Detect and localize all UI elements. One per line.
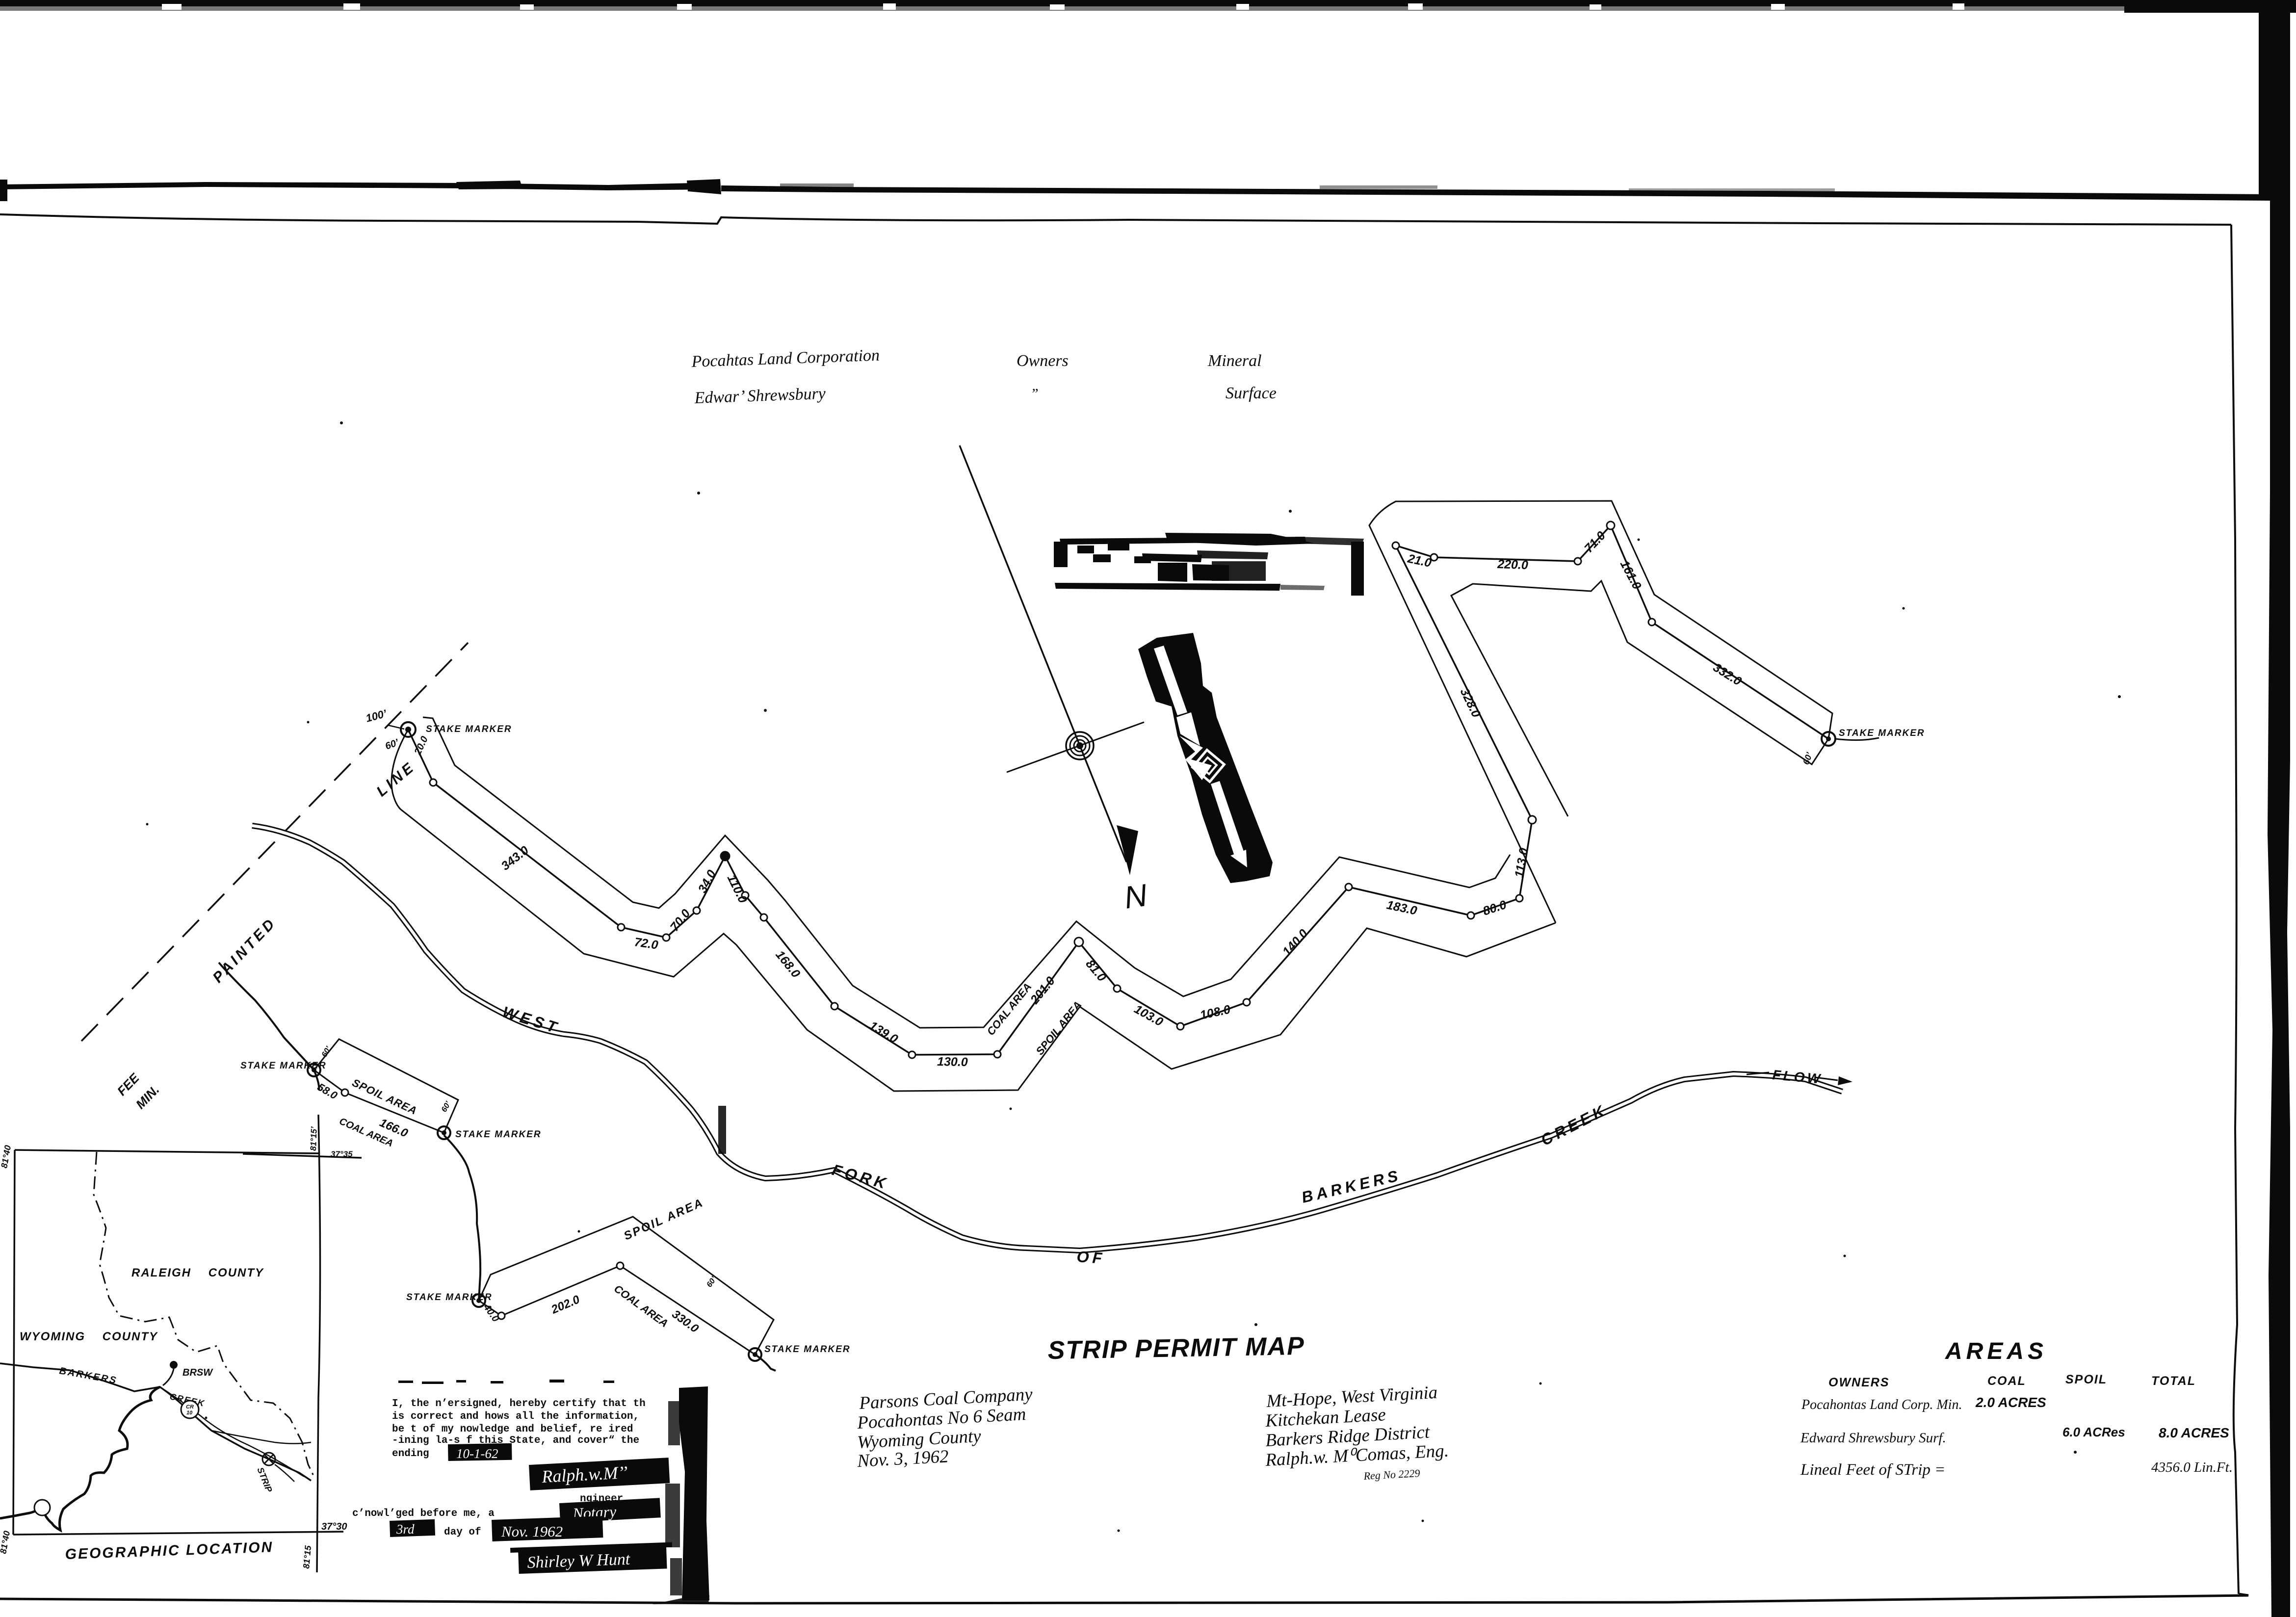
svg-text:is correct and hows all the i: is correct and hows all the information, — [392, 1411, 639, 1422]
svg-text:4356.0 Lin.Ft.: 4356.0 Lin.Ft. — [2151, 1460, 2233, 1475]
svg-text:STAKE MARKER: STAKE MARKER — [1839, 728, 1925, 738]
svg-text:BRSW: BRSW — [183, 1367, 213, 1378]
svg-text:COAL: COAL — [1987, 1374, 2026, 1388]
svg-text:6.0 ACRes: 6.0 ACRes — [2062, 1425, 2125, 1439]
svg-text:37°35: 37°35 — [331, 1149, 353, 1159]
svg-text:day of: day of — [444, 1527, 481, 1538]
svg-text:2.0 ACRES: 2.0 ACRES — [1975, 1395, 2046, 1410]
svg-text:130.0: 130.0 — [937, 1055, 968, 1069]
svg-text:OF: OF — [1076, 1248, 1106, 1267]
svg-text:I, the n’ersigned, hereby cer: I, the n’ersigned, hereby certify that t… — [392, 1398, 646, 1409]
svg-text:OWNERS: OWNERS — [1828, 1376, 1890, 1389]
svg-text:”: ” — [1030, 386, 1039, 402]
svg-text:Lineal Feet of STrip =: Lineal Feet of STrip = — [1800, 1461, 1945, 1479]
svg-text:STAKE MARKER: STAKE MARKER — [406, 1292, 493, 1303]
svg-text:RALEIGH COUNTY: RALEIGH COUNTY — [131, 1266, 264, 1279]
svg-text:81°15: 81°15 — [301, 1545, 313, 1569]
svg-text:ending: ending — [392, 1448, 429, 1460]
svg-text:c’nowl’ged before me, a: c’nowl’ged before me, a — [352, 1508, 495, 1519]
svg-text:10-1-62: 10-1-62 — [456, 1446, 498, 1461]
svg-text:STAKE MARKER: STAKE MARKER — [455, 1129, 542, 1140]
svg-text:37°30: 37°30 — [321, 1521, 347, 1532]
svg-text:STAKE MARKER: STAKE MARKER — [764, 1344, 851, 1355]
svg-text:SPOIL: SPOIL — [2065, 1373, 2107, 1386]
svg-text:Mineral: Mineral — [1207, 352, 1262, 370]
svg-text:-ining la-s f this State, and: -ining la-s f this State, and cover“ the — [392, 1435, 639, 1446]
svg-text:Edward Shrewsbury Surf.: Edward Shrewsbury Surf. — [1800, 1430, 1946, 1446]
svg-text:STRIP PERMIT MAP: STRIP PERMIT MAP — [1047, 1332, 1305, 1365]
svg-text:CR: CR — [186, 1404, 194, 1410]
svg-text:10: 10 — [186, 1410, 193, 1416]
svg-text:220.0: 220.0 — [1497, 557, 1529, 572]
svg-text:be t of my nowledge and belie: be t of my nowledge and belief, re ired — [392, 1424, 633, 1435]
svg-text:81°15’: 81°15’ — [309, 1126, 319, 1151]
svg-text:AREAS: AREAS — [1945, 1338, 2047, 1364]
svg-text:Owners: Owners — [1017, 352, 1069, 370]
svg-text:STAKE MARKER: STAKE MARKER — [240, 1061, 327, 1071]
svg-text:TOTAL: TOTAL — [2151, 1374, 2196, 1388]
svg-text:8.0 ACRES: 8.0 ACRES — [2159, 1425, 2229, 1440]
svg-text:Shirley W Hunt: Shirley W Hunt — [527, 1550, 631, 1572]
svg-text:Pocahontas Land Corp. Min.: Pocahontas Land Corp. Min. — [1801, 1397, 1962, 1412]
svg-text:3rd: 3rd — [396, 1522, 415, 1537]
svg-text:Nov. 1962: Nov. 1962 — [501, 1523, 563, 1540]
svg-text:STAKE MARKER: STAKE MARKER — [426, 724, 512, 734]
svg-text:Surface: Surface — [1226, 384, 1277, 402]
svg-text:WYOMING COUNTY: WYOMING COUNTY — [20, 1330, 158, 1343]
